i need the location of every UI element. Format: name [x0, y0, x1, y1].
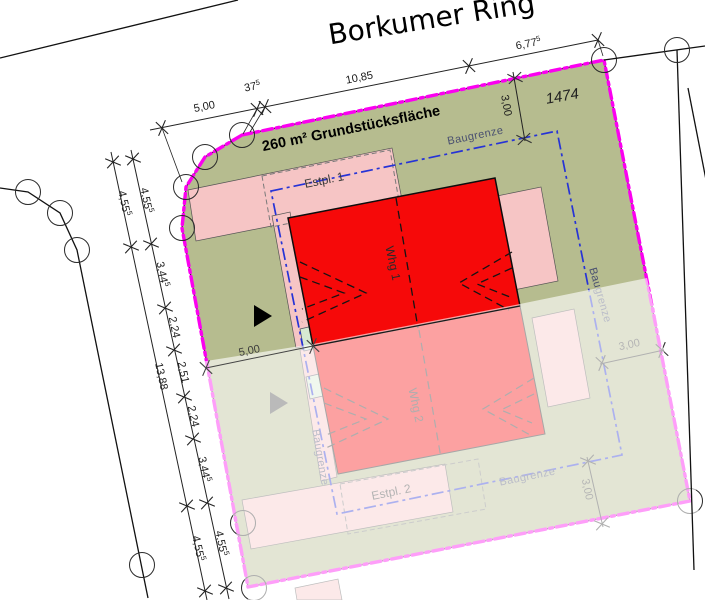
dim-top-2: 375: [243, 78, 262, 95]
ext-line: [250, 107, 265, 132]
dim-top-4: 6,775: [514, 34, 542, 53]
street-edge-top: [0, 0, 238, 58]
dim-tick: [199, 500, 215, 507]
dim-linner-2: 3,445: [153, 260, 172, 288]
dim-linner-1: 4,555: [137, 186, 156, 214]
dim-linner-6: 3,445: [195, 455, 214, 483]
dim-linner-7: 4,555: [212, 529, 231, 557]
dim-linner-5: 2,24: [185, 405, 201, 428]
ext-line: [162, 128, 182, 182]
street-name-label: Borkumer Ring: [326, 0, 537, 51]
neighbour-boundary-right2: [688, 88, 705, 190]
dim-linner-3: 2,24: [166, 316, 182, 339]
site-plan-drawing: Baugrenze Baugrenze Baugrenze Estpl. 2 W…: [0, 0, 705, 600]
site-plan-page: Baugrenze Baugrenze Baugrenze Estpl. 2 W…: [0, 0, 705, 600]
dim-louter-2: 13,88: [152, 362, 169, 391]
survey-point: [130, 553, 155, 578]
dim-louter-1: 4,555: [115, 189, 134, 217]
dim-linner-4: 2,51: [175, 361, 191, 384]
dim-tick: [185, 436, 201, 443]
dim-top-3: 10,85: [345, 69, 374, 86]
dim-top-1: 5,00: [193, 99, 216, 115]
dim-louter-3: 4,555: [189, 534, 208, 562]
neighbour-boundary-left: [0, 188, 148, 598]
